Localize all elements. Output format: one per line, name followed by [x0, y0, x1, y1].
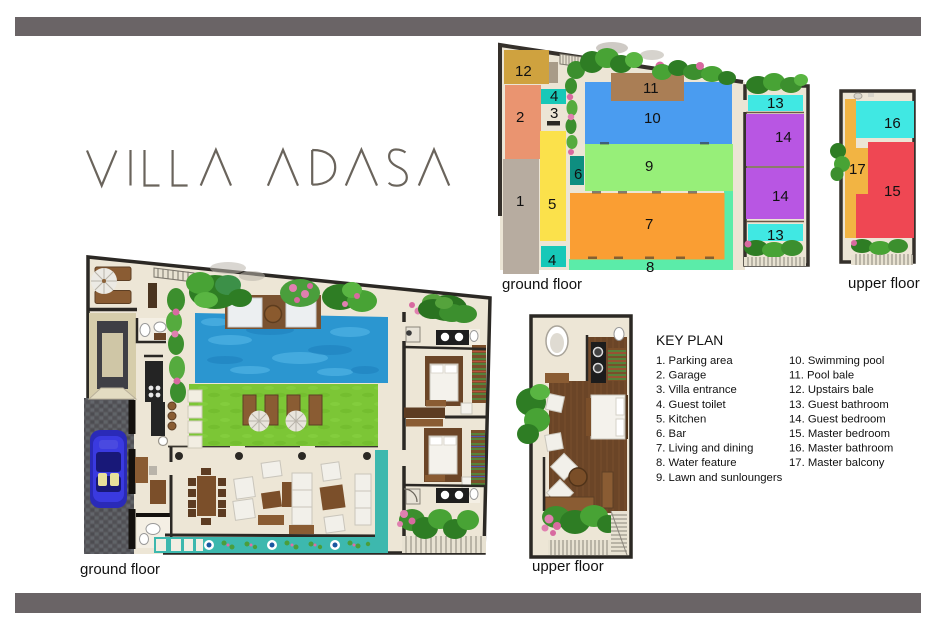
svg-text:2. Garage: 2. Garage	[656, 370, 706, 382]
svg-text:9: 9	[645, 158, 653, 175]
svg-text:11: 11	[643, 80, 659, 97]
svg-text:13: 13	[767, 95, 784, 112]
svg-text:17: 17	[849, 161, 866, 178]
svg-text:8: 8	[646, 259, 654, 276]
svg-text:1. Parking area: 1. Parking area	[656, 355, 733, 367]
svg-text:4: 4	[548, 252, 556, 269]
svg-text:upper floor: upper floor	[532, 558, 604, 575]
svg-text:1: 1	[516, 193, 524, 210]
svg-text:10: 10	[644, 110, 661, 127]
svg-text:12. Upstairs bale: 12. Upstairs bale	[789, 384, 874, 396]
svg-text:10. Swimming pool: 10. Swimming pool	[789, 355, 884, 367]
svg-text:4. Guest toilet: 4. Guest toilet	[656, 399, 727, 411]
svg-text:13: 13	[767, 227, 784, 244]
svg-text:3. Villa entrance: 3. Villa entrance	[656, 384, 737, 396]
svg-text:7. Living and dining: 7. Living and dining	[656, 443, 753, 455]
svg-text:14: 14	[772, 188, 789, 205]
svg-text:9. Lawn and sunloungers: 9. Lawn and sunloungers	[656, 472, 783, 484]
svg-text:7: 7	[645, 216, 653, 233]
svg-text:17. Master balcony: 17. Master balcony	[789, 457, 885, 469]
svg-text:6. Bar: 6. Bar	[656, 428, 686, 440]
svg-text:KEY PLAN: KEY PLAN	[656, 333, 723, 348]
svg-text:2: 2	[516, 109, 524, 126]
svg-text:13. Guest bathroom: 13. Guest bathroom	[789, 399, 889, 411]
svg-text:15. Master bedroom: 15. Master bedroom	[789, 428, 890, 440]
svg-text:14: 14	[775, 129, 792, 146]
svg-text:14. Guest bedroom: 14. Guest bedroom	[789, 413, 886, 425]
svg-text:ground floor: ground floor	[502, 276, 582, 293]
svg-text:11. Pool bale: 11. Pool bale	[789, 370, 854, 382]
svg-text:6: 6	[574, 166, 582, 183]
svg-text:12: 12	[515, 63, 532, 80]
svg-text:8. Water feature: 8. Water feature	[656, 457, 737, 469]
svg-text:5. Kitchen: 5. Kitchen	[656, 413, 706, 425]
svg-text:ground floor: ground floor	[80, 561, 160, 578]
svg-text:15: 15	[884, 183, 901, 200]
svg-text:4: 4	[550, 88, 558, 105]
svg-text:5: 5	[548, 196, 556, 213]
svg-text:16: 16	[884, 115, 901, 132]
svg-text:16. Master bathroom: 16. Master bathroom	[789, 443, 893, 455]
svg-text:upper floor: upper floor	[848, 275, 920, 292]
svg-text:3: 3	[550, 105, 558, 122]
